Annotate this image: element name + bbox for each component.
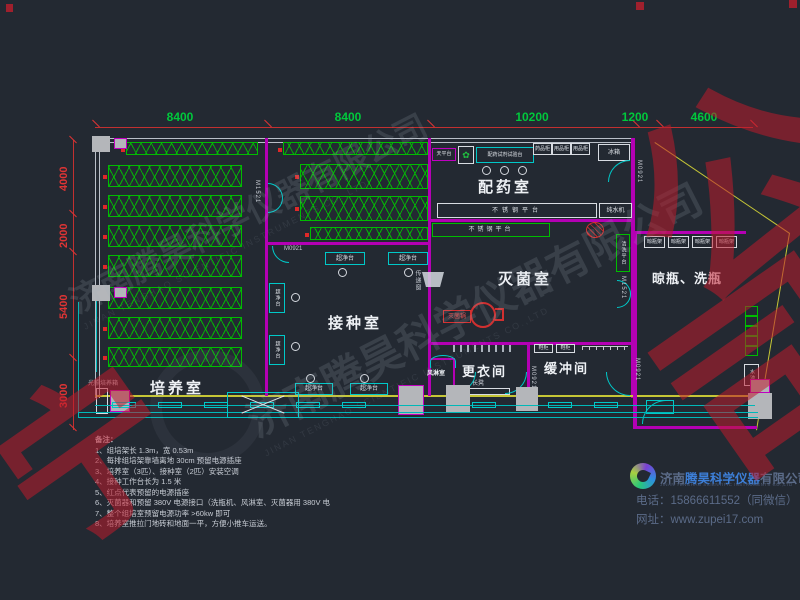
stool bbox=[291, 342, 300, 351]
clean-bench: 超净台 bbox=[350, 383, 388, 395]
note-item-6: 6、灭菌器和预留 380V 电源接口（洗瓶机、风淋室、灭菌器用 380V 电 bbox=[95, 498, 330, 509]
wall-culture-inoc bbox=[265, 138, 268, 396]
door-arc bbox=[268, 183, 283, 198]
bottle-rack: 晾瓶架 bbox=[692, 236, 713, 248]
column bbox=[748, 393, 772, 419]
company-phone: 电话：15866611552（同微信） bbox=[636, 492, 798, 508]
sterilizer-pot bbox=[470, 302, 496, 328]
note-item-5: 5、红点代表预留的电源插座 bbox=[95, 488, 330, 499]
column bbox=[398, 385, 424, 415]
sterilizer-label: 灭菌锅 bbox=[443, 310, 471, 323]
door-arc bbox=[606, 372, 630, 396]
phone-number: 15866611552（同微信） bbox=[671, 495, 798, 507]
wall-dispense-south bbox=[428, 219, 634, 222]
phone-label: 电话： bbox=[636, 495, 671, 507]
door-label-m1521: M1521 bbox=[254, 180, 260, 203]
pure-water-machine: 纯水机 bbox=[599, 203, 632, 218]
dim-line-left bbox=[73, 140, 74, 430]
column bbox=[750, 379, 770, 393]
culture-rack bbox=[108, 225, 242, 247]
supply-cabinet: 用品柜 bbox=[552, 143, 571, 155]
red-mark bbox=[789, 0, 797, 8]
ss-platform-2: 不锈钢平台 bbox=[432, 223, 550, 237]
dim-left-3000: 3000 bbox=[58, 368, 70, 408]
culture-rack bbox=[108, 317, 242, 339]
culture-rack bbox=[300, 196, 428, 221]
stool bbox=[518, 166, 527, 175]
culture-rack bbox=[108, 195, 242, 217]
bench-seat bbox=[465, 388, 510, 395]
window bbox=[594, 402, 618, 408]
company-name-en: JINAN TENGHAO SCIENTIFIC INSTRUMENTS CO.… bbox=[660, 482, 793, 487]
note-item-4: 4、接种工作台长为 1.5 米 bbox=[95, 477, 330, 488]
dim-top-8400b: 8400 bbox=[308, 110, 388, 124]
culture-rack bbox=[108, 287, 242, 309]
dim-top-8400a: 8400 bbox=[140, 110, 220, 124]
door-label-m0921: M0921 bbox=[284, 246, 302, 252]
dim-left-5400: 5400 bbox=[58, 279, 70, 319]
door-label-m0921: M0921 bbox=[636, 160, 642, 183]
stool bbox=[404, 268, 413, 277]
stool bbox=[360, 374, 369, 383]
culture-rack bbox=[310, 227, 428, 240]
stool bbox=[306, 374, 315, 383]
room-label-inoculation: 接种室 bbox=[328, 312, 382, 333]
room-label-sterilization: 灭菌室 bbox=[498, 268, 552, 289]
incubator-label: 光照培养箱 bbox=[88, 381, 118, 387]
website-url: www.zupei17.com bbox=[671, 514, 764, 526]
incubator-box bbox=[110, 390, 130, 412]
dim-top-10200: 10200 bbox=[487, 110, 577, 124]
coat-rail bbox=[582, 346, 628, 350]
sterilizer-handle bbox=[495, 308, 504, 321]
culture-rack bbox=[300, 164, 428, 189]
stool bbox=[482, 166, 491, 175]
culture-rack bbox=[126, 142, 258, 155]
website-label: 网址： bbox=[636, 514, 671, 526]
wall-bottle-south bbox=[633, 426, 757, 429]
dim-top-1200: 1200 bbox=[612, 110, 658, 124]
logo-swirl bbox=[635, 468, 651, 484]
cad-floorplan-canvas: 8400 8400 10200 1200 4600 4000 2000 5400… bbox=[0, 0, 800, 600]
dim-left-2000: 2000 bbox=[58, 208, 70, 248]
culture-rack bbox=[108, 165, 242, 187]
stool bbox=[500, 166, 509, 175]
company-website: 网址：www.zupei17.com bbox=[636, 511, 763, 527]
door-label-m1521: M1521 bbox=[620, 276, 626, 299]
window bbox=[112, 402, 136, 408]
fridge: 冰箱 bbox=[598, 144, 630, 161]
incubator-cabinet bbox=[96, 388, 108, 414]
culture-rack bbox=[283, 142, 428, 155]
bottle-rack: 晾瓶架 bbox=[668, 236, 689, 248]
wall-inoc-north bbox=[265, 242, 431, 245]
wall-bottle-north bbox=[633, 231, 746, 234]
column bbox=[92, 136, 110, 152]
room-label-bottle: 晾瓶、洗瓶 bbox=[652, 268, 722, 287]
room-label-airshower: 风淋室 bbox=[427, 371, 445, 377]
ss-platform-1: 不锈钢平台 bbox=[437, 203, 597, 218]
stool bbox=[338, 268, 347, 277]
clean-bench: 超净台 bbox=[269, 335, 285, 365]
bottle-rack: 晾瓶架 bbox=[716, 236, 737, 248]
note-item-7: 7、整个组培室预留电源功率 >60kw 即可 bbox=[95, 509, 330, 520]
airshower-door-arc bbox=[430, 355, 456, 368]
wash-platform: 清洗平台 bbox=[616, 234, 630, 272]
door-arc bbox=[268, 198, 283, 213]
column bbox=[516, 387, 538, 411]
dim-left-4000: 4000 bbox=[58, 151, 70, 191]
path-line-west bbox=[78, 302, 79, 418]
clean-bench: 超净台 bbox=[325, 252, 365, 265]
door-label-m0921: M0921 bbox=[634, 358, 640, 381]
dim-line-top bbox=[95, 127, 753, 128]
note-item-3: 3、培养室（3匹）、接种室（2匹）安装空调 bbox=[95, 467, 330, 478]
culture-rack bbox=[108, 255, 242, 277]
dispense-bench: 配药试剂试验台 bbox=[476, 147, 534, 163]
clean-bench: 超净台 bbox=[295, 383, 333, 395]
column bbox=[114, 138, 127, 149]
supply-cabinet: 用品柜 bbox=[571, 143, 590, 155]
window bbox=[342, 402, 366, 408]
drying-ladder-rack bbox=[745, 306, 758, 356]
note-item-8: 8、培养室推拉门地砖和地面一平，方便小推车运送。 bbox=[95, 519, 330, 530]
wall-bottle-west bbox=[633, 231, 637, 429]
clean-bench: 超净台 bbox=[388, 252, 428, 265]
window bbox=[296, 402, 320, 408]
column bbox=[446, 385, 470, 413]
balance-table: 天平台 bbox=[432, 148, 456, 161]
watermark-logo-swirl bbox=[150, 350, 265, 465]
transfer-window-label: 传递窗 bbox=[414, 270, 420, 291]
shoe-cabinet: 鞋柜 bbox=[534, 344, 553, 353]
window bbox=[472, 402, 496, 408]
plant-icon: ✿ bbox=[458, 146, 474, 164]
column bbox=[114, 287, 127, 298]
window bbox=[548, 402, 572, 408]
company-logo-icon bbox=[630, 463, 656, 489]
bottle-rack: 晾瓶架 bbox=[644, 236, 665, 248]
stool bbox=[291, 293, 300, 302]
room-label-dispensing: 配药室 bbox=[478, 176, 532, 197]
floor-drain bbox=[586, 222, 604, 238]
wall-west-window bbox=[96, 300, 97, 372]
column bbox=[92, 285, 110, 301]
room-label-buffer: 缓冲间 bbox=[544, 358, 589, 377]
bench-seat-label: 长凳 bbox=[472, 381, 484, 387]
dim-top-4600: 4600 bbox=[672, 110, 736, 124]
transfer-window bbox=[422, 272, 444, 287]
door-label-m0921: M0921 bbox=[530, 366, 536, 389]
red-mark bbox=[636, 2, 644, 10]
medicine-cabinet: 药品柜 bbox=[533, 143, 552, 155]
clean-bench: 超净台 bbox=[269, 283, 285, 313]
shoe-cabinet: 鞋柜 bbox=[556, 344, 575, 353]
red-mark bbox=[6, 4, 13, 12]
hanger-hooks bbox=[453, 345, 513, 352]
site-boundary-1 bbox=[654, 142, 790, 234]
door-arc bbox=[608, 160, 630, 182]
